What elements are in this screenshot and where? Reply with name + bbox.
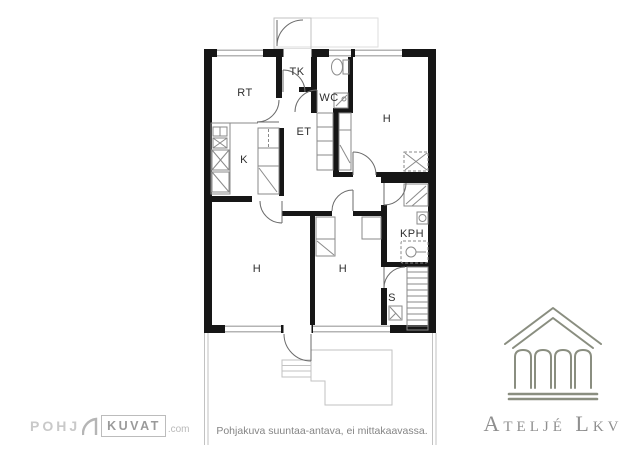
room-labels: RT TK WC ET K H H H KPH S: [237, 66, 424, 304]
classical-building-icon: [503, 306, 603, 402]
pohjakuvat-logo-suffix: .com: [168, 424, 190, 437]
yard-boundary-right: [433, 333, 437, 445]
kitchen-counter-icon: [211, 123, 258, 194]
room-label-s: S: [388, 292, 396, 304]
room-label-wc: WC: [319, 92, 338, 104]
room-label-h3: H: [339, 263, 347, 275]
bedroom3-closet-icon: [316, 217, 381, 256]
rt-door: [257, 100, 279, 122]
pohjakuvat-logo-part1: POHJ: [30, 418, 80, 434]
toilet-icon: [332, 59, 350, 75]
room-label-et: ET: [296, 126, 311, 138]
washing-machine-icon: [401, 241, 428, 263]
agency-logo: Ateljé Lkv: [478, 306, 628, 437]
pohjakuvat-logo-part2: KUVAT: [107, 419, 161, 433]
kph-door: [384, 183, 406, 205]
door-swing-icon: [82, 416, 99, 436]
sauna-stove-icon: [389, 306, 402, 320]
bedroom2-door: [260, 201, 282, 223]
room-label-rt: RT: [237, 87, 252, 99]
room-label-k: K: [240, 154, 248, 166]
plan-caption: Pohjakuva suuntaa-antava, ei mittakaavas…: [216, 425, 427, 437]
room-label-kph: KPH: [400, 228, 424, 240]
yard-boundary-left: [205, 333, 209, 445]
bedroom1-closet-icon: [404, 152, 428, 171]
pohjakuvat-logo: POHJ KUVAT .com: [30, 415, 190, 437]
kph-sink-icon: [417, 212, 428, 224]
back-door: [284, 334, 311, 361]
room-label-h1: H: [383, 113, 391, 125]
floor-plan-page: RT TK WC ET K H H H KPH S Pohjakuva suun…: [0, 0, 640, 452]
entrance-canopy: [274, 18, 378, 47]
stairs-icon: [407, 267, 428, 330]
room-label-tk: TK: [289, 66, 304, 78]
sauna-door: [384, 267, 405, 288]
bedroom3-door: [332, 190, 353, 211]
entrance-door: [277, 20, 303, 46]
terrace-outline: [311, 350, 392, 405]
shower-icon: [404, 184, 428, 206]
room-label-h2: H: [253, 263, 261, 275]
bedroom1-door: [353, 152, 376, 175]
back-steps: [282, 360, 311, 377]
pohjakuvat-logo-box: KUVAT: [101, 415, 166, 437]
kitchen-cabinet-icon: [258, 128, 279, 194]
agency-name: Ateljé Lkv: [478, 411, 628, 437]
